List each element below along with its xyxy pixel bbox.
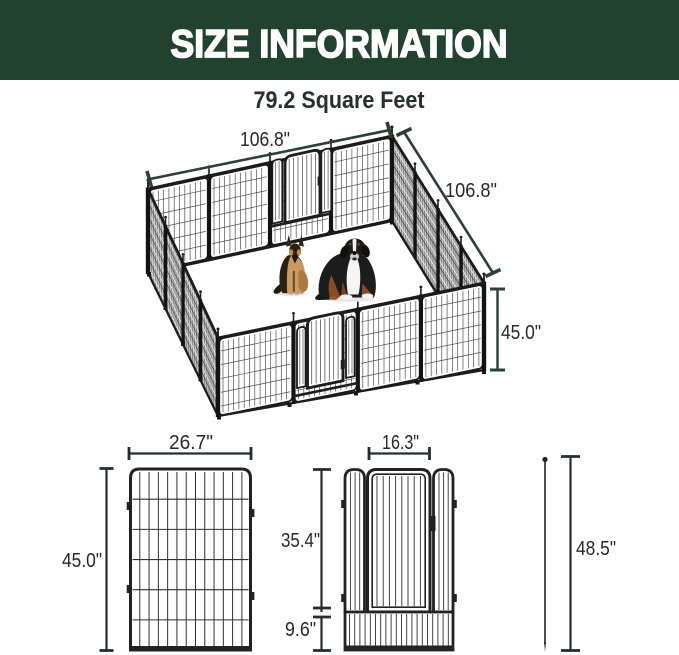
svg-text:48.5": 48.5": [576, 538, 616, 560]
svg-text:9.6": 9.6": [285, 619, 316, 641]
svg-text:SIZE INFORMATION: SIZE INFORMATION: [171, 23, 508, 66]
svg-text:16.3": 16.3": [382, 432, 419, 454]
svg-text:35.4": 35.4": [281, 530, 320, 552]
svg-text:106.8": 106.8": [240, 129, 290, 151]
svg-text:106.8": 106.8": [445, 180, 497, 202]
svg-text:26.7": 26.7": [169, 432, 213, 454]
svg-text:79.2 Square Feet: 79.2 Square Feet: [254, 87, 425, 114]
svg-text:45.0": 45.0": [62, 550, 102, 572]
svg-text:45.0": 45.0": [501, 322, 541, 344]
